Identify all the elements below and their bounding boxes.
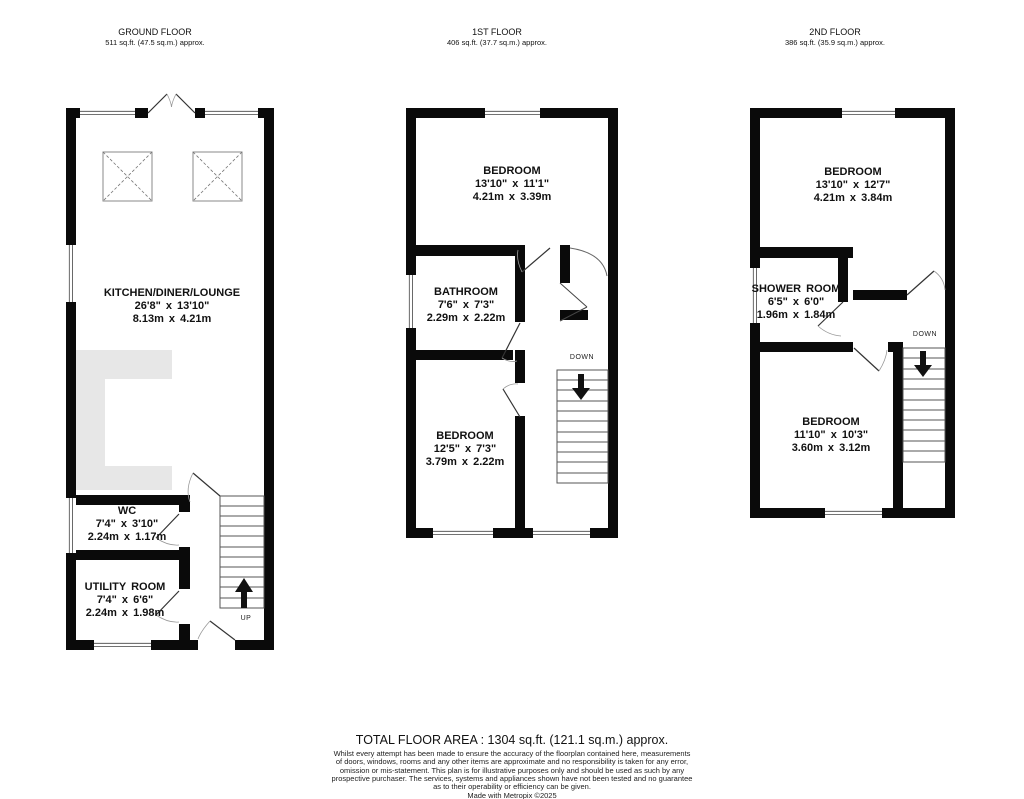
room-label-kitchen-diner-lounge: KITCHEN/DINER/LOUNGE 26'8" x 13'10" 8.13…: [82, 287, 262, 326]
room-name: BEDROOM: [741, 416, 921, 429]
second-floor-title: 2ND FLOOR: [735, 27, 935, 38]
ground-floor-title: GROUND FLOOR: [55, 27, 255, 38]
room-name: SHOWER ROOM: [706, 283, 886, 296]
kitchen-counter: [76, 350, 172, 490]
total-floor-area: TOTAL FLOOR AREA : 1304 sq.ft. (121.1 sq…: [0, 733, 1024, 747]
skylight-icon: [103, 152, 242, 201]
room-size-imperial: 7'4" x 3'10": [47, 518, 207, 531]
ground-floor-header: GROUND FLOOR 511 sq.ft. (47.5 sq.m.) app…: [55, 27, 255, 47]
room-size-metric: 3.60m x 3.12m: [741, 442, 921, 455]
room-size-imperial: 7'6" x 7'3": [376, 299, 556, 312]
ground-stairs: [220, 496, 264, 608]
first-stairs: [557, 370, 608, 483]
room-size-metric: 2.24m x 1.98m: [45, 607, 205, 620]
room-size-imperial: 12'5" x 7'3": [375, 443, 555, 456]
room-size-imperial: 13'10" x 12'7": [763, 179, 943, 192]
room-label-wc: WC 7'4" x 3'10" 2.24m x 1.17m: [47, 505, 207, 544]
room-name: WC: [47, 505, 207, 518]
floorplan-page: GROUND FLOOR 511 sq.ft. (47.5 sq.m.) app…: [0, 0, 1024, 799]
made-with-credit: Made with Metropix ©2025: [0, 791, 1024, 799]
room-size-imperial: 11'10" x 10'3": [741, 429, 921, 442]
disclaimer-text: Whilst every attempt has been made to en…: [0, 750, 1024, 791]
room-size-metric: 4.21m x 3.84m: [763, 192, 943, 205]
room-size-imperial: 6'5" x 6'0": [706, 296, 886, 309]
room-size-metric: 1.96m x 1.84m: [706, 309, 886, 322]
room-label-shower-room: SHOWER ROOM 6'5" x 6'0" 1.96m x 1.84m: [706, 283, 886, 322]
ground-floor-plan-graphic: [66, 88, 274, 650]
room-label-bathroom: BATHROOM 7'6" x 7'3" 2.29m x 2.22m: [376, 286, 556, 325]
room-label-first-bedroom-1: BEDROOM 13'10" x 11'1" 4.21m x 3.39m: [422, 165, 602, 204]
room-label-second-bedroom-2: BEDROOM 11'10" x 10'3" 3.60m x 3.12m: [741, 416, 921, 455]
ground-floor-area: 511 sq.ft. (47.5 sq.m.) approx.: [55, 38, 255, 47]
second-floor-area: 386 sq.ft. (35.9 sq.m.) approx.: [735, 38, 935, 47]
room-name: BATHROOM: [376, 286, 556, 299]
room-name: BEDROOM: [763, 166, 943, 179]
first-stair-label: DOWN: [552, 354, 612, 361]
room-size-metric: 4.21m x 3.39m: [422, 191, 602, 204]
room-label-first-bedroom-2: BEDROOM 12'5" x 7'3" 3.79m x 2.22m: [375, 430, 555, 469]
room-label-second-bedroom-1: BEDROOM 13'10" x 12'7" 4.21m x 3.84m: [763, 166, 943, 205]
room-name: BEDROOM: [375, 430, 555, 443]
ground-stair-label: UP: [226, 615, 266, 622]
first-floor-title: 1ST FLOOR: [397, 27, 597, 38]
room-name: BEDROOM: [422, 165, 602, 178]
ground-floor-plan: [66, 88, 274, 650]
first-floor-header: 1ST FLOOR 406 sq.ft. (37.7 sq.m.) approx…: [397, 27, 597, 47]
first-floor-area: 406 sq.ft. (37.7 sq.m.) approx.: [397, 38, 597, 47]
room-size-imperial: 7'4" x 6'6": [45, 594, 205, 607]
room-size-metric: 8.13m x 4.21m: [82, 313, 262, 326]
room-size-metric: 2.24m x 1.17m: [47, 531, 207, 544]
room-size-imperial: 26'8" x 13'10": [82, 300, 262, 313]
room-size-metric: 2.29m x 2.22m: [376, 312, 556, 325]
room-name: KITCHEN/DINER/LOUNGE: [82, 287, 262, 300]
second-floor-header: 2ND FLOOR 386 sq.ft. (35.9 sq.m.) approx…: [735, 27, 935, 47]
room-name: UTILITY ROOM: [45, 581, 205, 594]
room-label-utility-room: UTILITY ROOM 7'4" x 6'6" 2.24m x 1.98m: [45, 581, 205, 620]
room-size-imperial: 13'10" x 11'1": [422, 178, 602, 191]
second-stair-label: DOWN: [895, 331, 955, 338]
room-size-metric: 3.79m x 2.22m: [375, 456, 555, 469]
